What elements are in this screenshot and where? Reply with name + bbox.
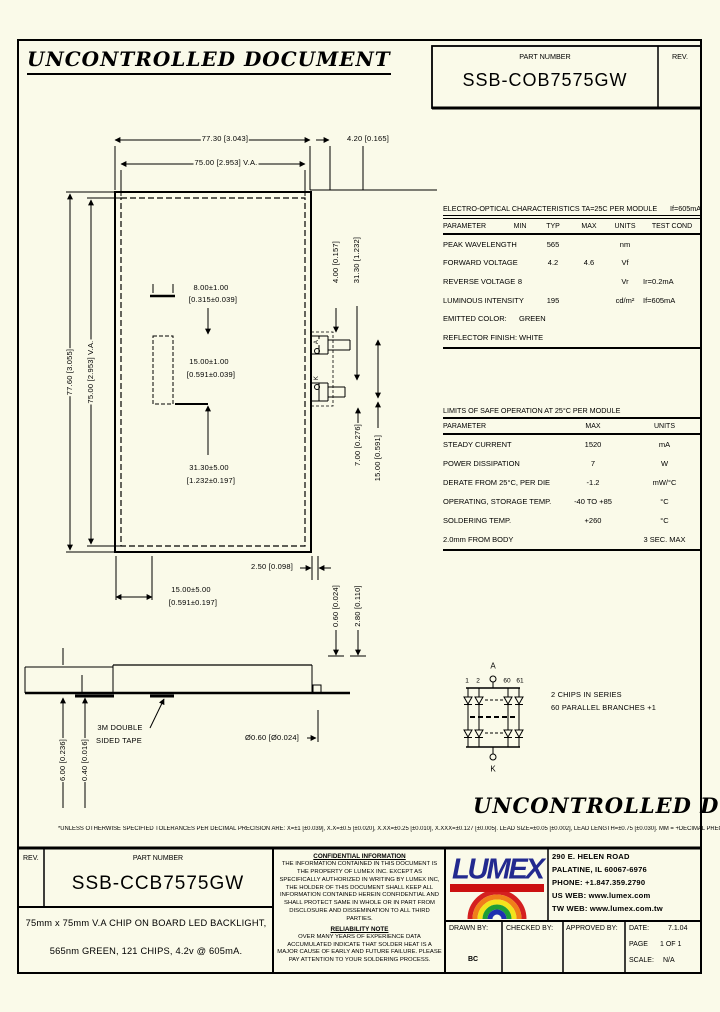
tb-part-number-label: PART NUMBER — [133, 855, 183, 862]
address-tw-web: TW WEB: www.lumex.com.tw — [552, 904, 663, 913]
dim-side-1: 6.00 [0.236] — [59, 738, 67, 782]
table-row: REFLECTOR FINISH: WHITE — [443, 328, 701, 347]
scale-value: N/A — [663, 957, 675, 964]
dim-top-va: 75.00 [2.953] V.A. — [194, 159, 259, 167]
tape-label-1: 3M DOUBLE — [96, 724, 143, 732]
dim-right-2: 31.30 [1.232] — [353, 236, 361, 284]
circuit-note-2: 60 PARALLEL BRANCHES +1 — [551, 703, 656, 712]
circuit-branch-2: 2 — [476, 678, 480, 685]
limits-table-title: LIMITS OF SAFE OPERATION AT 25°C PER MOD… — [443, 406, 620, 415]
rev-label: REV. — [672, 52, 688, 61]
terminal-k-label: K — [314, 375, 320, 381]
dim-pin-diameter: Ø0.60 [Ø0.024] — [244, 734, 300, 742]
table-row: 2.0mm FROM BODY 3 SEC. MAX — [443, 530, 701, 549]
description-line-2: 565nm GREEN, 121 CHIPS, 4.2v @ 605mA. — [50, 946, 243, 956]
reliability-title: RELIABILITY NOTE — [277, 926, 442, 934]
dim-bottom-4: 2.80 [0.110] — [354, 584, 362, 627]
approved-by-label: APPROVED BY: — [566, 925, 618, 932]
eo-table: ELECTRO-OPTICAL CHARACTERISTICS TA=25C P… — [443, 204, 701, 349]
scale-label: SCALE: — [629, 957, 654, 964]
part-number-label: PART NUMBER — [519, 52, 571, 61]
date-label: DATE: — [629, 925, 649, 932]
watermark-bottom: UNCONTROLLED DOCUMENT — [473, 793, 720, 818]
address-us-web: US WEB: www.lumex.com — [552, 891, 650, 900]
watermark-top: UNCONTROLLED DOCUMENT — [27, 47, 391, 75]
dim-conn-h: 15.00±1.00 — [188, 358, 229, 366]
checked-by-label: CHECKED BY: — [506, 925, 553, 932]
circuit-branch-61: 61 — [516, 678, 523, 685]
address-phone: PHONE: +1.847.359.2790 — [552, 878, 645, 887]
eo-table-condition: If=605mA — [670, 204, 701, 213]
circuit-cathode-label: K — [490, 765, 495, 774]
dim-bottom-3: 0.60 [0.024] — [332, 584, 340, 628]
dim-top-width: 77.30 [3.043] — [201, 135, 249, 143]
dim-top-offset: 4.20 [0.165] — [346, 135, 390, 143]
address-line-2: PALATINE, IL 60067-6976 — [552, 865, 647, 874]
lumex-logo: LUMEX — [452, 852, 543, 886]
tape-label-2: SIDED TAPE — [95, 737, 143, 745]
dim-conn-w-in: [0.315±0.039] — [188, 296, 238, 304]
side-view — [25, 648, 350, 808]
dimension-lines — [66, 140, 378, 656]
dim-conn-y: 31.30±5.00 — [188, 464, 229, 472]
top-view — [115, 190, 437, 552]
tb-part-number-value: SSB-CCB7575GW — [72, 873, 244, 895]
table-row: OPERATING, STORAGE TEMP. -40 TO +85 °C — [443, 492, 701, 511]
address-line-1: 290 E. HELEN ROAD — [552, 852, 630, 861]
table-row: EMITTED COLOR: GREEN — [443, 309, 701, 328]
table-row: PEAK WAVELENGTH 565 nm — [443, 235, 701, 254]
table-row: LUMINOUS INTENSITY 195 cd/m² If=605mA — [443, 291, 701, 310]
date-value: 7.1.04 — [668, 925, 687, 932]
dim-right-1: 4.00 [0.157] — [332, 240, 340, 284]
drawn-by-value: BC — [468, 956, 478, 963]
page-value: 1 OF 1 — [660, 941, 681, 948]
circuit-anode-label: A — [490, 662, 495, 671]
table-row: STEADY CURRENT 1520 mA — [443, 435, 701, 454]
tb-rev-label: REV. — [23, 855, 39, 862]
terminal-a-label: A — [314, 339, 320, 345]
table-row: REVERSE VOLTAGE 8 Vr Ir=0.2mA — [443, 272, 701, 291]
circuit-branch-1: 1 — [465, 678, 469, 685]
datasheet-page: UNCONTROLLED DOCUMENT UNCONTROLLED DOCUM… — [0, 0, 720, 1012]
dim-right-3: 7.00 [0.276] — [354, 423, 362, 467]
table-row: DERATE FROM 25°C, PER DIE -1.2 mW/°C — [443, 473, 701, 492]
logo-red-banner — [450, 884, 544, 892]
circuit-diagram — [464, 676, 523, 760]
table-row: FORWARD VOLTAGE 4.2 4.6 Vf — [443, 254, 701, 273]
limits-table: LIMITS OF SAFE OPERATION AT 25°C PER MOD… — [443, 406, 701, 551]
dim-right-4: 15.00 [0.591] — [374, 434, 382, 482]
dim-bottom-2: 15.00±5.00 — [170, 586, 211, 594]
limits-table-header: PARAMETER MAX UNITS — [443, 419, 701, 435]
dim-conn-y-in: [1.232±0.197] — [186, 477, 236, 485]
confidential-title: CONFIDENTIAL INFORMATION — [277, 853, 442, 861]
circuit-note-1: 2 CHIPS IN SERIES — [551, 690, 622, 699]
table-row: POWER DISSIPATION 7 W — [443, 454, 701, 473]
dim-conn-h-in: [0.591±0.039] — [186, 371, 236, 379]
dim-left-va: 75.00 [2.953] V.A. — [87, 340, 95, 405]
confidential-body: THE INFORMATION CONTAINED IN THIS DOCUME… — [279, 861, 439, 921]
confidential-block: CONFIDENTIAL INFORMATION THE INFORMATION… — [277, 851, 442, 965]
reliability-body: OVER MANY YEARS OF EXPERIENCE DATA ACCUM… — [277, 934, 441, 963]
eo-table-title: ELECTRO-OPTICAL CHARACTERISTICS TA=25C P… — [443, 204, 657, 213]
dim-side-2: 0.40 [0.016] — [81, 738, 89, 782]
eo-table-header: PARAMETER MIN TYP MAX UNITS TEST COND — [443, 219, 701, 235]
description-line-1: 75mm x 75mm V.A CHIP ON BOARD LED BACKLI… — [26, 918, 267, 928]
part-number-value: SSB-COB7575GW — [462, 70, 627, 91]
page-label: PAGE — [629, 941, 648, 948]
logo-rainbow — [450, 892, 544, 919]
dim-conn-w: 8.00±1.00 — [192, 284, 229, 292]
table-row: SOLDERING TEMP. +260 °C — [443, 511, 701, 530]
tolerance-note: *UNLESS OTHERWISE SPECIFIED TOLERANCES P… — [58, 826, 687, 832]
drawn-by-label: DRAWN BY: — [449, 925, 488, 932]
dim-bottom-1: 2.50 [0.098] — [250, 563, 294, 571]
circuit-branch-60: 60 — [503, 678, 510, 685]
dim-bottom-2-in: [0.591±0.197] — [168, 599, 218, 607]
dim-left-height: 77.60 [3.055] — [66, 348, 74, 396]
